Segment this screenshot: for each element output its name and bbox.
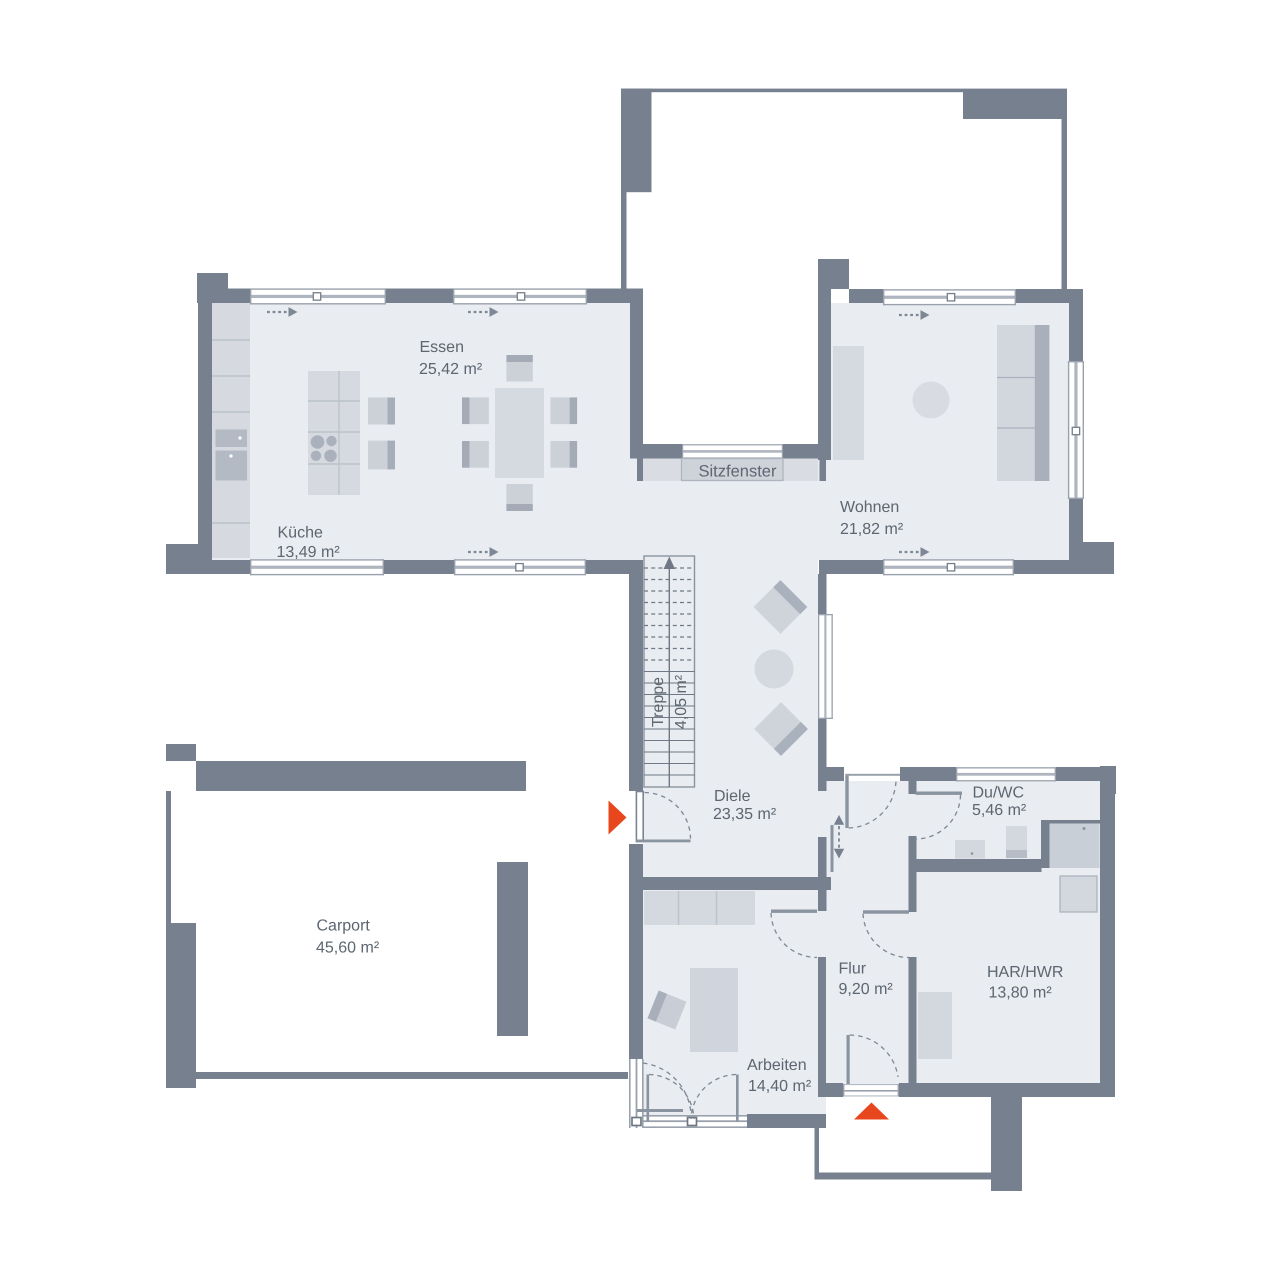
svg-text:21,82 m²: 21,82 m² [840,521,904,538]
svg-text:Arbeiten: Arbeiten [747,1057,807,1074]
svg-text:Du/WC: Du/WC [973,785,1025,802]
svg-text:14,40 m²: 14,40 m² [748,1078,812,1095]
svg-text:13,80 m²: 13,80 m² [989,985,1053,1002]
svg-text:13,49 m²: 13,49 m² [277,544,341,561]
svg-text:Flur: Flur [839,961,867,978]
svg-text:Carport: Carport [317,918,371,935]
svg-text:Küche: Küche [278,525,323,542]
svg-text:Treppe: Treppe [650,677,667,727]
svg-text:Diele: Diele [714,788,751,805]
svg-text:Sitzfenster: Sitzfenster [699,463,777,481]
svg-text:45,60 m²: 45,60 m² [316,940,380,957]
svg-text:9,20 m²: 9,20 m² [839,981,894,998]
svg-text:23,35 m²: 23,35 m² [713,806,777,823]
svg-text:4,05 m²: 4,05 m² [673,674,690,729]
svg-text:25,42 m²: 25,42 m² [419,361,483,378]
svg-text:Wohnen: Wohnen [840,499,899,516]
svg-text:5,46 m²: 5,46 m² [972,802,1027,819]
svg-text:Essen: Essen [420,339,464,356]
svg-text:HAR/HWR: HAR/HWR [987,964,1063,981]
